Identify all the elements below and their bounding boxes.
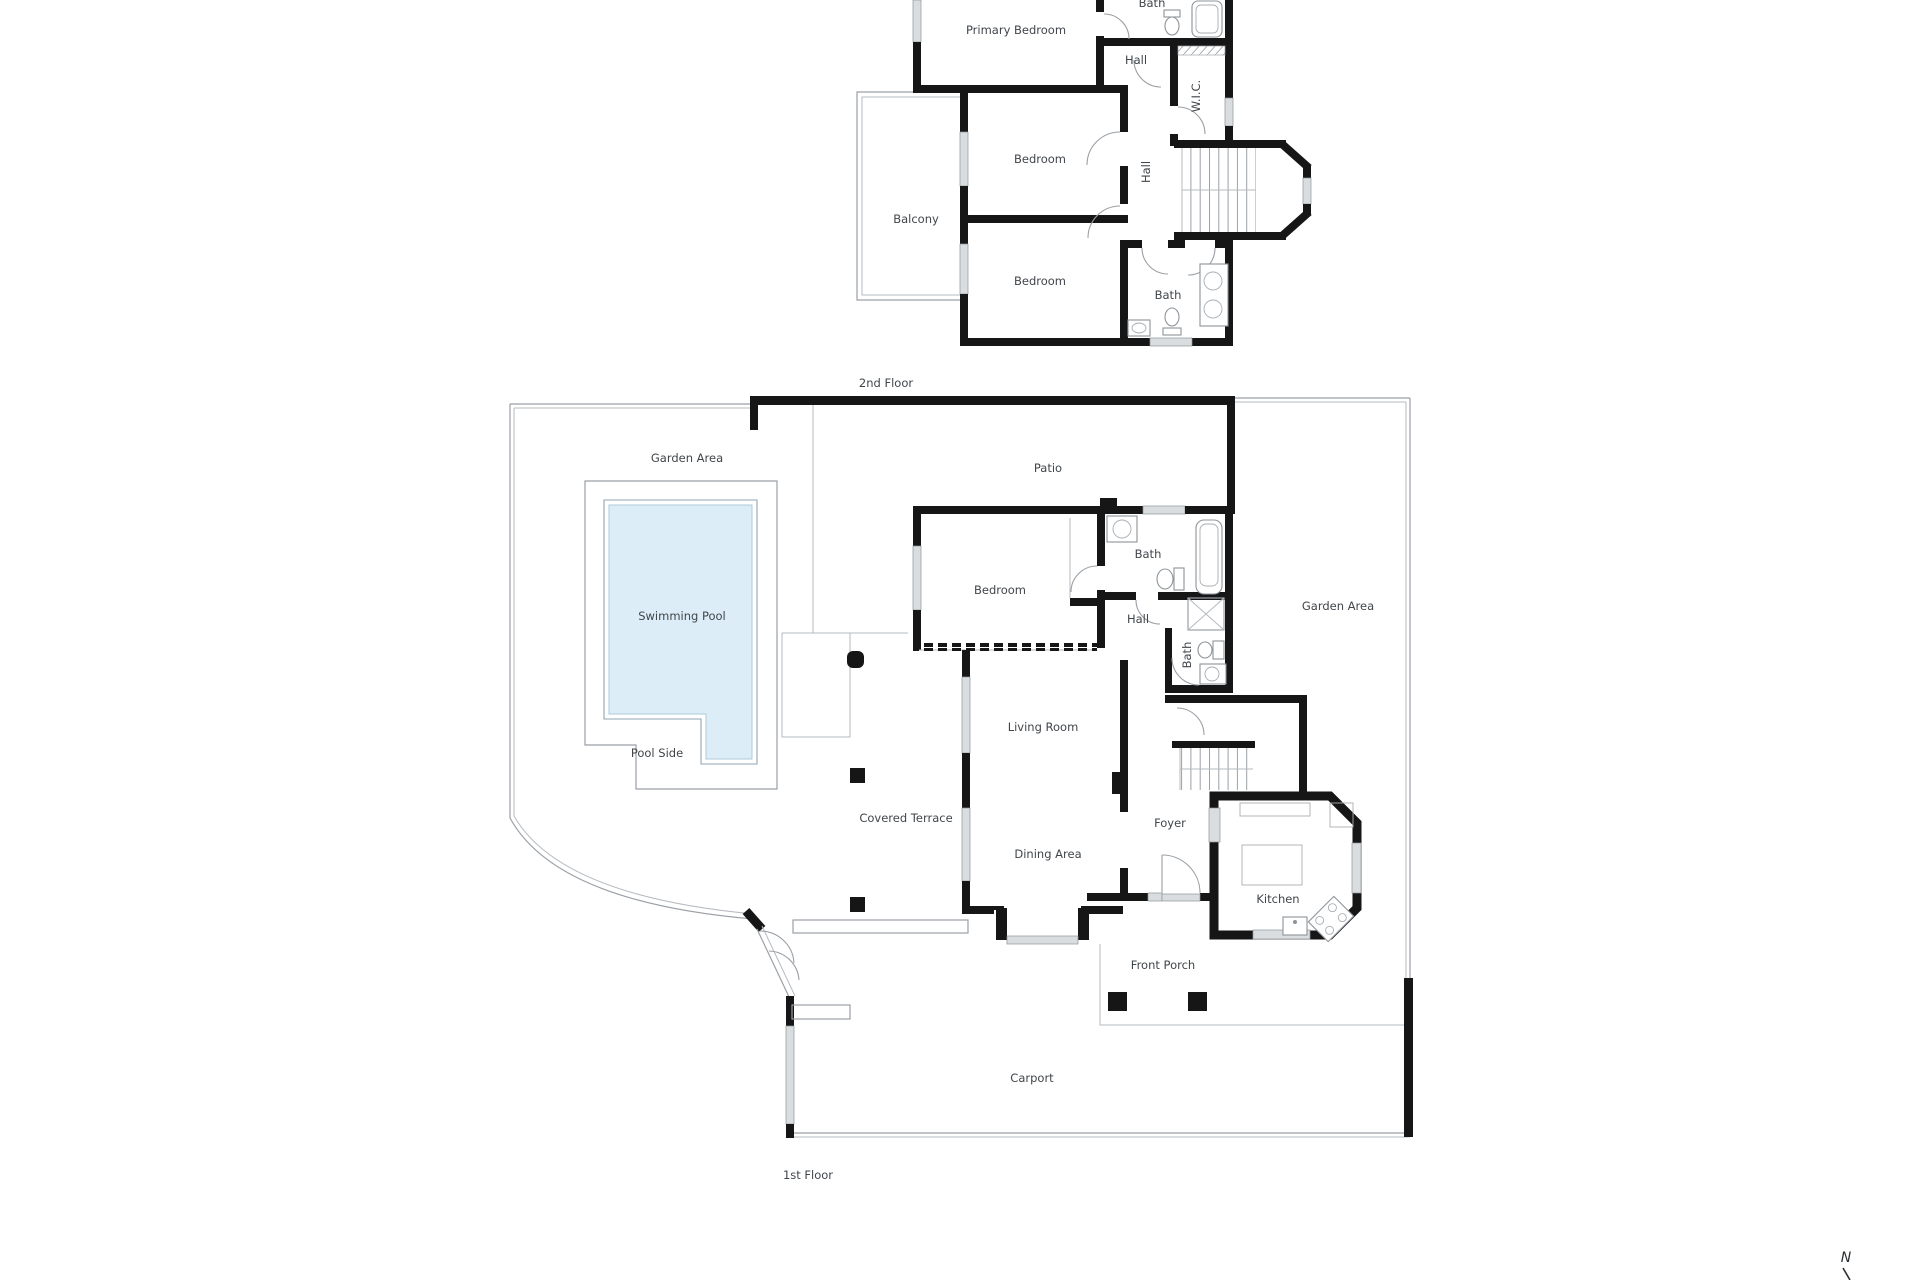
north-label: N	[1841, 1250, 1852, 1266]
floor2-plan: Primary Bedroom Bath Hall W.I.C. Hall Be…	[857, 0, 1311, 390]
room-label-bath-top: Bath	[1139, 0, 1166, 10]
shower-stall	[1188, 598, 1224, 630]
room-label-garden-right: Garden Area	[1302, 599, 1374, 613]
terrace-steps	[792, 920, 968, 1019]
front-porch	[1100, 944, 1404, 1025]
floorplan-page: Primary Bedroom Bath Hall W.I.C. Hall Be…	[0, 0, 1920, 1280]
bath-top-fixtures	[1164, 1, 1222, 37]
staircase-upper	[1182, 148, 1256, 232]
room-label-dining-area: Dining Area	[1014, 847, 1081, 861]
room-label-front-porch: Front Porch	[1131, 958, 1195, 972]
room-label-living-room: Living Room	[1008, 720, 1079, 734]
staircase-lower	[1180, 748, 1253, 790]
driveway-gate	[746, 911, 799, 999]
room-label-patio: Patio	[1034, 461, 1062, 475]
swimming-pool	[585, 481, 777, 789]
kitchen-block	[1209, 796, 1361, 942]
room-label-foyer: Foyer	[1154, 816, 1186, 830]
wic-closet-rod	[1178, 46, 1225, 55]
floor1-walls	[913, 498, 1307, 914]
floor2-caption: 2nd Floor	[859, 376, 913, 390]
room-label-garden-left: Garden Area	[651, 451, 723, 465]
floor1-caption: 1st Floor	[783, 1168, 833, 1182]
room-label-bedroom-lower: Bedroom	[1014, 274, 1066, 288]
patio-wall	[750, 396, 1235, 514]
room-label-hall-main: Hall	[1139, 161, 1153, 183]
room-label-hall: Hall	[1127, 612, 1149, 626]
terrace-structure	[782, 633, 908, 912]
north-arrow-icon: N	[1841, 1250, 1852, 1280]
room-label-balcony: Balcony	[893, 212, 939, 226]
floorplan-svg: Primary Bedroom Bath Hall W.I.C. Hall Be…	[0, 0, 1920, 1280]
room-label-swimming-pool: Swimming Pool	[638, 609, 726, 623]
room-label-carport: Carport	[1010, 1071, 1054, 1085]
room-label-bedroom-mid: Bedroom	[1014, 152, 1066, 166]
room-label-bedroom: Bedroom	[974, 583, 1026, 597]
sink-icon	[1283, 917, 1307, 935]
room-label-wic: W.I.C.	[1189, 80, 1203, 112]
floor1-plan: Garden Area Patio Swimming Pool Pool Sid…	[510, 396, 1413, 1182]
room-label-bath-main: Bath	[1135, 547, 1162, 561]
room-label-covered-terrace: Covered Terrace	[859, 811, 952, 825]
bath-main-fixtures	[1107, 516, 1222, 594]
dining-bay-window	[994, 908, 1089, 944]
room-label-bath-small: Bath	[1180, 642, 1194, 669]
room-label-kitchen: Kitchen	[1256, 892, 1299, 906]
room-label-pool-side: Pool Side	[631, 746, 683, 760]
balcony-outline	[857, 92, 968, 300]
room-label-hall-upper: Hall	[1125, 53, 1147, 67]
room-label-bath-lower: Bath	[1155, 288, 1182, 302]
bath-small-fixtures	[1198, 641, 1226, 684]
room-label-primary-bedroom: Primary Bedroom	[966, 23, 1066, 37]
